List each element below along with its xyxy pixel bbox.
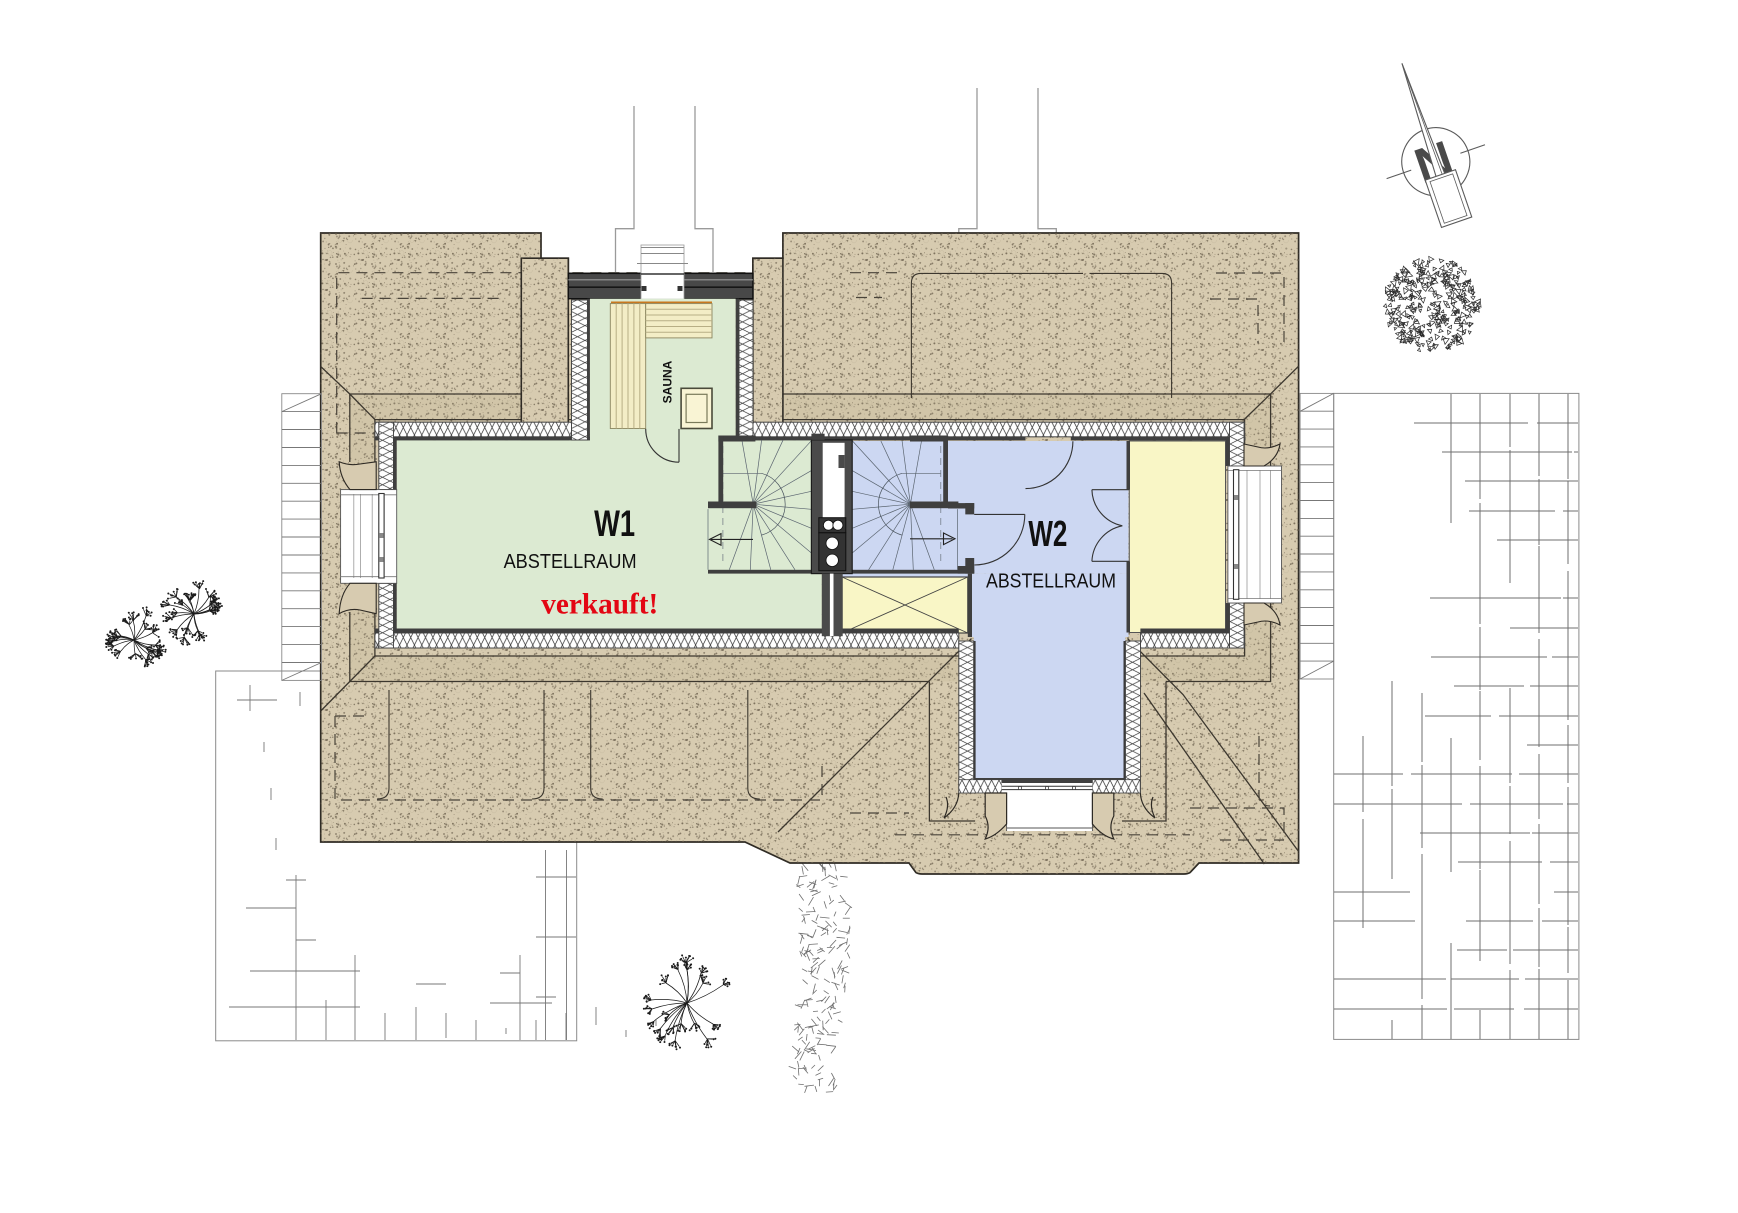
svg-text:ABSTELLRAUM: ABSTELLRAUM (504, 551, 637, 573)
svg-text:W1: W1 (594, 503, 635, 544)
svg-text:ABSTELLRAUM: ABSTELLRAUM (986, 571, 1116, 593)
svg-text:W2: W2 (1028, 513, 1067, 554)
svg-text:SAUNA: SAUNA (661, 360, 675, 403)
svg-text:verkauft!: verkauft! (541, 588, 658, 621)
